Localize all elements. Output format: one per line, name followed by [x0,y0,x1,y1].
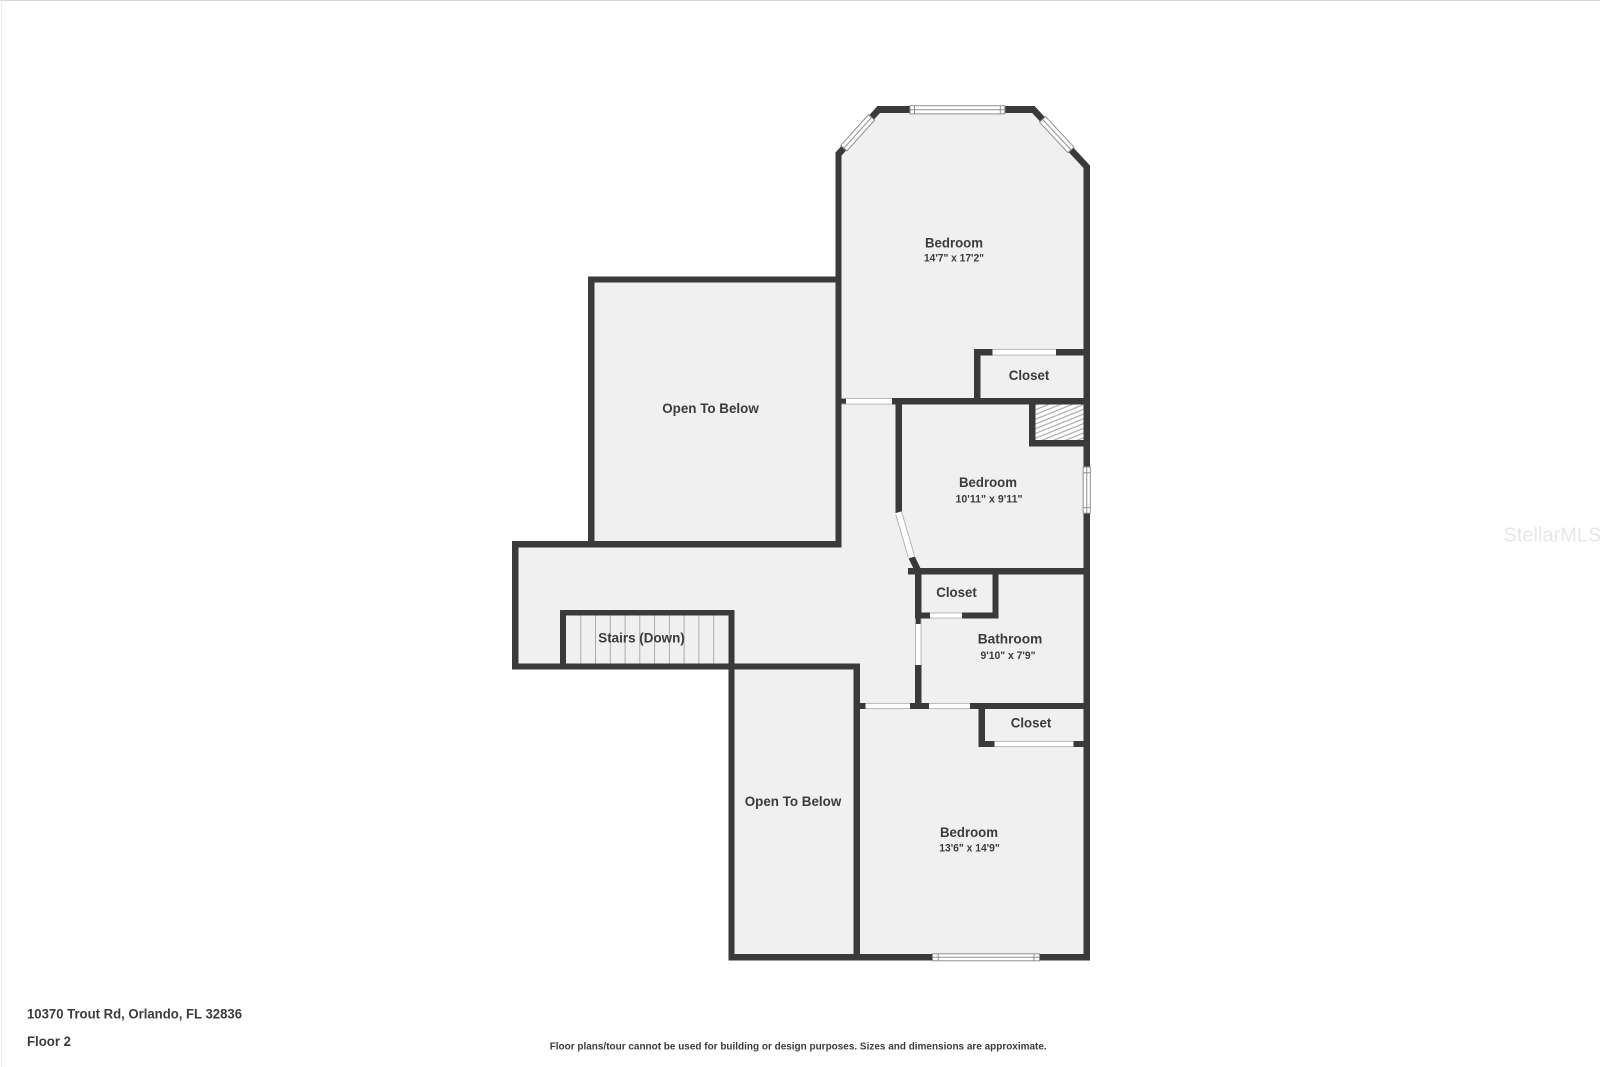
svg-text:9'10" x 7'9": 9'10" x 7'9" [981,650,1036,662]
svg-text:Stairs (Down): Stairs (Down) [598,631,685,646]
svg-text:Bedroom: Bedroom [959,475,1017,490]
svg-text:10370 Trout Rd, Orlando, FL 32: 10370 Trout Rd, Orlando, FL 32836 [27,1007,242,1023]
svg-text:10'11" x 9'11": 10'11" x 9'11" [956,494,1023,506]
svg-text:Floor 2: Floor 2 [27,1034,71,1049]
svg-text:Open To Below: Open To Below [662,401,759,416]
svg-text:Closet: Closet [1009,368,1050,383]
svg-text:Bedroom: Bedroom [925,236,983,251]
svg-text:Bathroom: Bathroom [978,632,1043,647]
svg-text:Closet: Closet [1011,716,1052,731]
svg-text:StellarMLS: StellarMLS [1504,525,1600,547]
svg-text:Bedroom: Bedroom [940,825,998,840]
svg-text:Floor plans/tour cannot be use: Floor plans/tour cannot be used for buil… [550,1041,1047,1052]
svg-text:14'7" x 17'2": 14'7" x 17'2" [924,253,984,265]
svg-text:13'6" x 14'9": 13'6" x 14'9" [939,843,1000,855]
svg-text:Open To Below: Open To Below [745,794,842,809]
svg-text:Closet: Closet [936,585,977,600]
